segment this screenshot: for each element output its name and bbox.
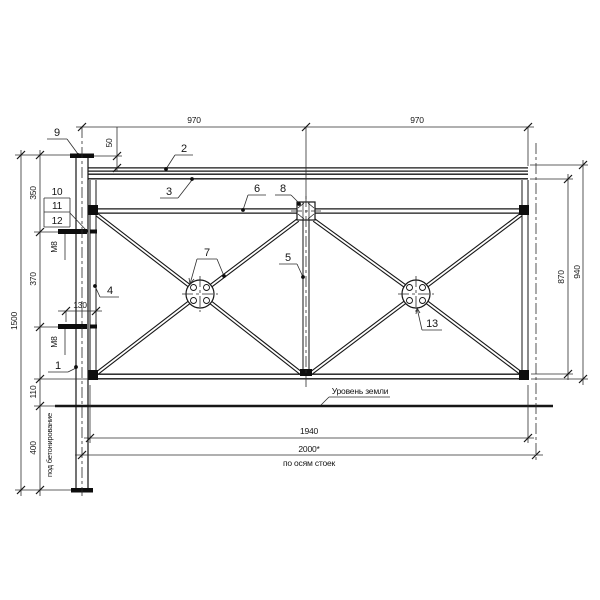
callout-11: 11 [52,201,63,212]
callout-13: 13 [426,318,438,330]
embed-note: под бетонирование [45,413,54,477]
dim-total-height: 1500 [9,311,19,330]
dim-rail-offset: 50 [104,138,114,148]
callout-6: 6 [254,183,260,195]
dim-overall-height: 940 [572,265,582,279]
callout-1: 1 [55,360,61,372]
fence-technical-drawing: 970 970 50 1500 350 370 110 400 130 М8 М… [0,0,600,600]
callout-3: 3 [166,186,172,198]
callout-4: 4 [107,285,113,297]
callout-8: 8 [280,183,286,195]
dim-seg-110: 110 [28,385,38,398]
dim-clear-span: 1940 [300,426,319,436]
dim-seg-400: 400 [28,441,38,455]
bolt-label-upper: М8 [49,241,59,253]
dimension-lines [15,127,588,496]
callout-12: 12 [52,216,63,227]
dim-seg-370: 370 [28,272,38,286]
dim-seg-350: 350 [28,186,38,200]
callout-5: 5 [285,252,291,264]
dim-panel-height: 870 [556,270,566,284]
handrail-top-rail [88,170,528,177]
dim-span-right: 970 [410,115,424,125]
bolt-label-lower: М8 [49,336,59,348]
callout-7: 7 [204,247,210,259]
dim-span-left: 970 [187,115,201,125]
callout-9: 9 [54,127,60,139]
callout-10: 10 [52,187,63,198]
dim-axis-span: 2000* [298,444,320,454]
axis-note: по осям стоек [283,458,336,468]
callout-2: 2 [181,143,187,155]
dim-bolt-length: 130 [73,300,87,310]
ground-level-label: Уровень земли [332,386,389,396]
